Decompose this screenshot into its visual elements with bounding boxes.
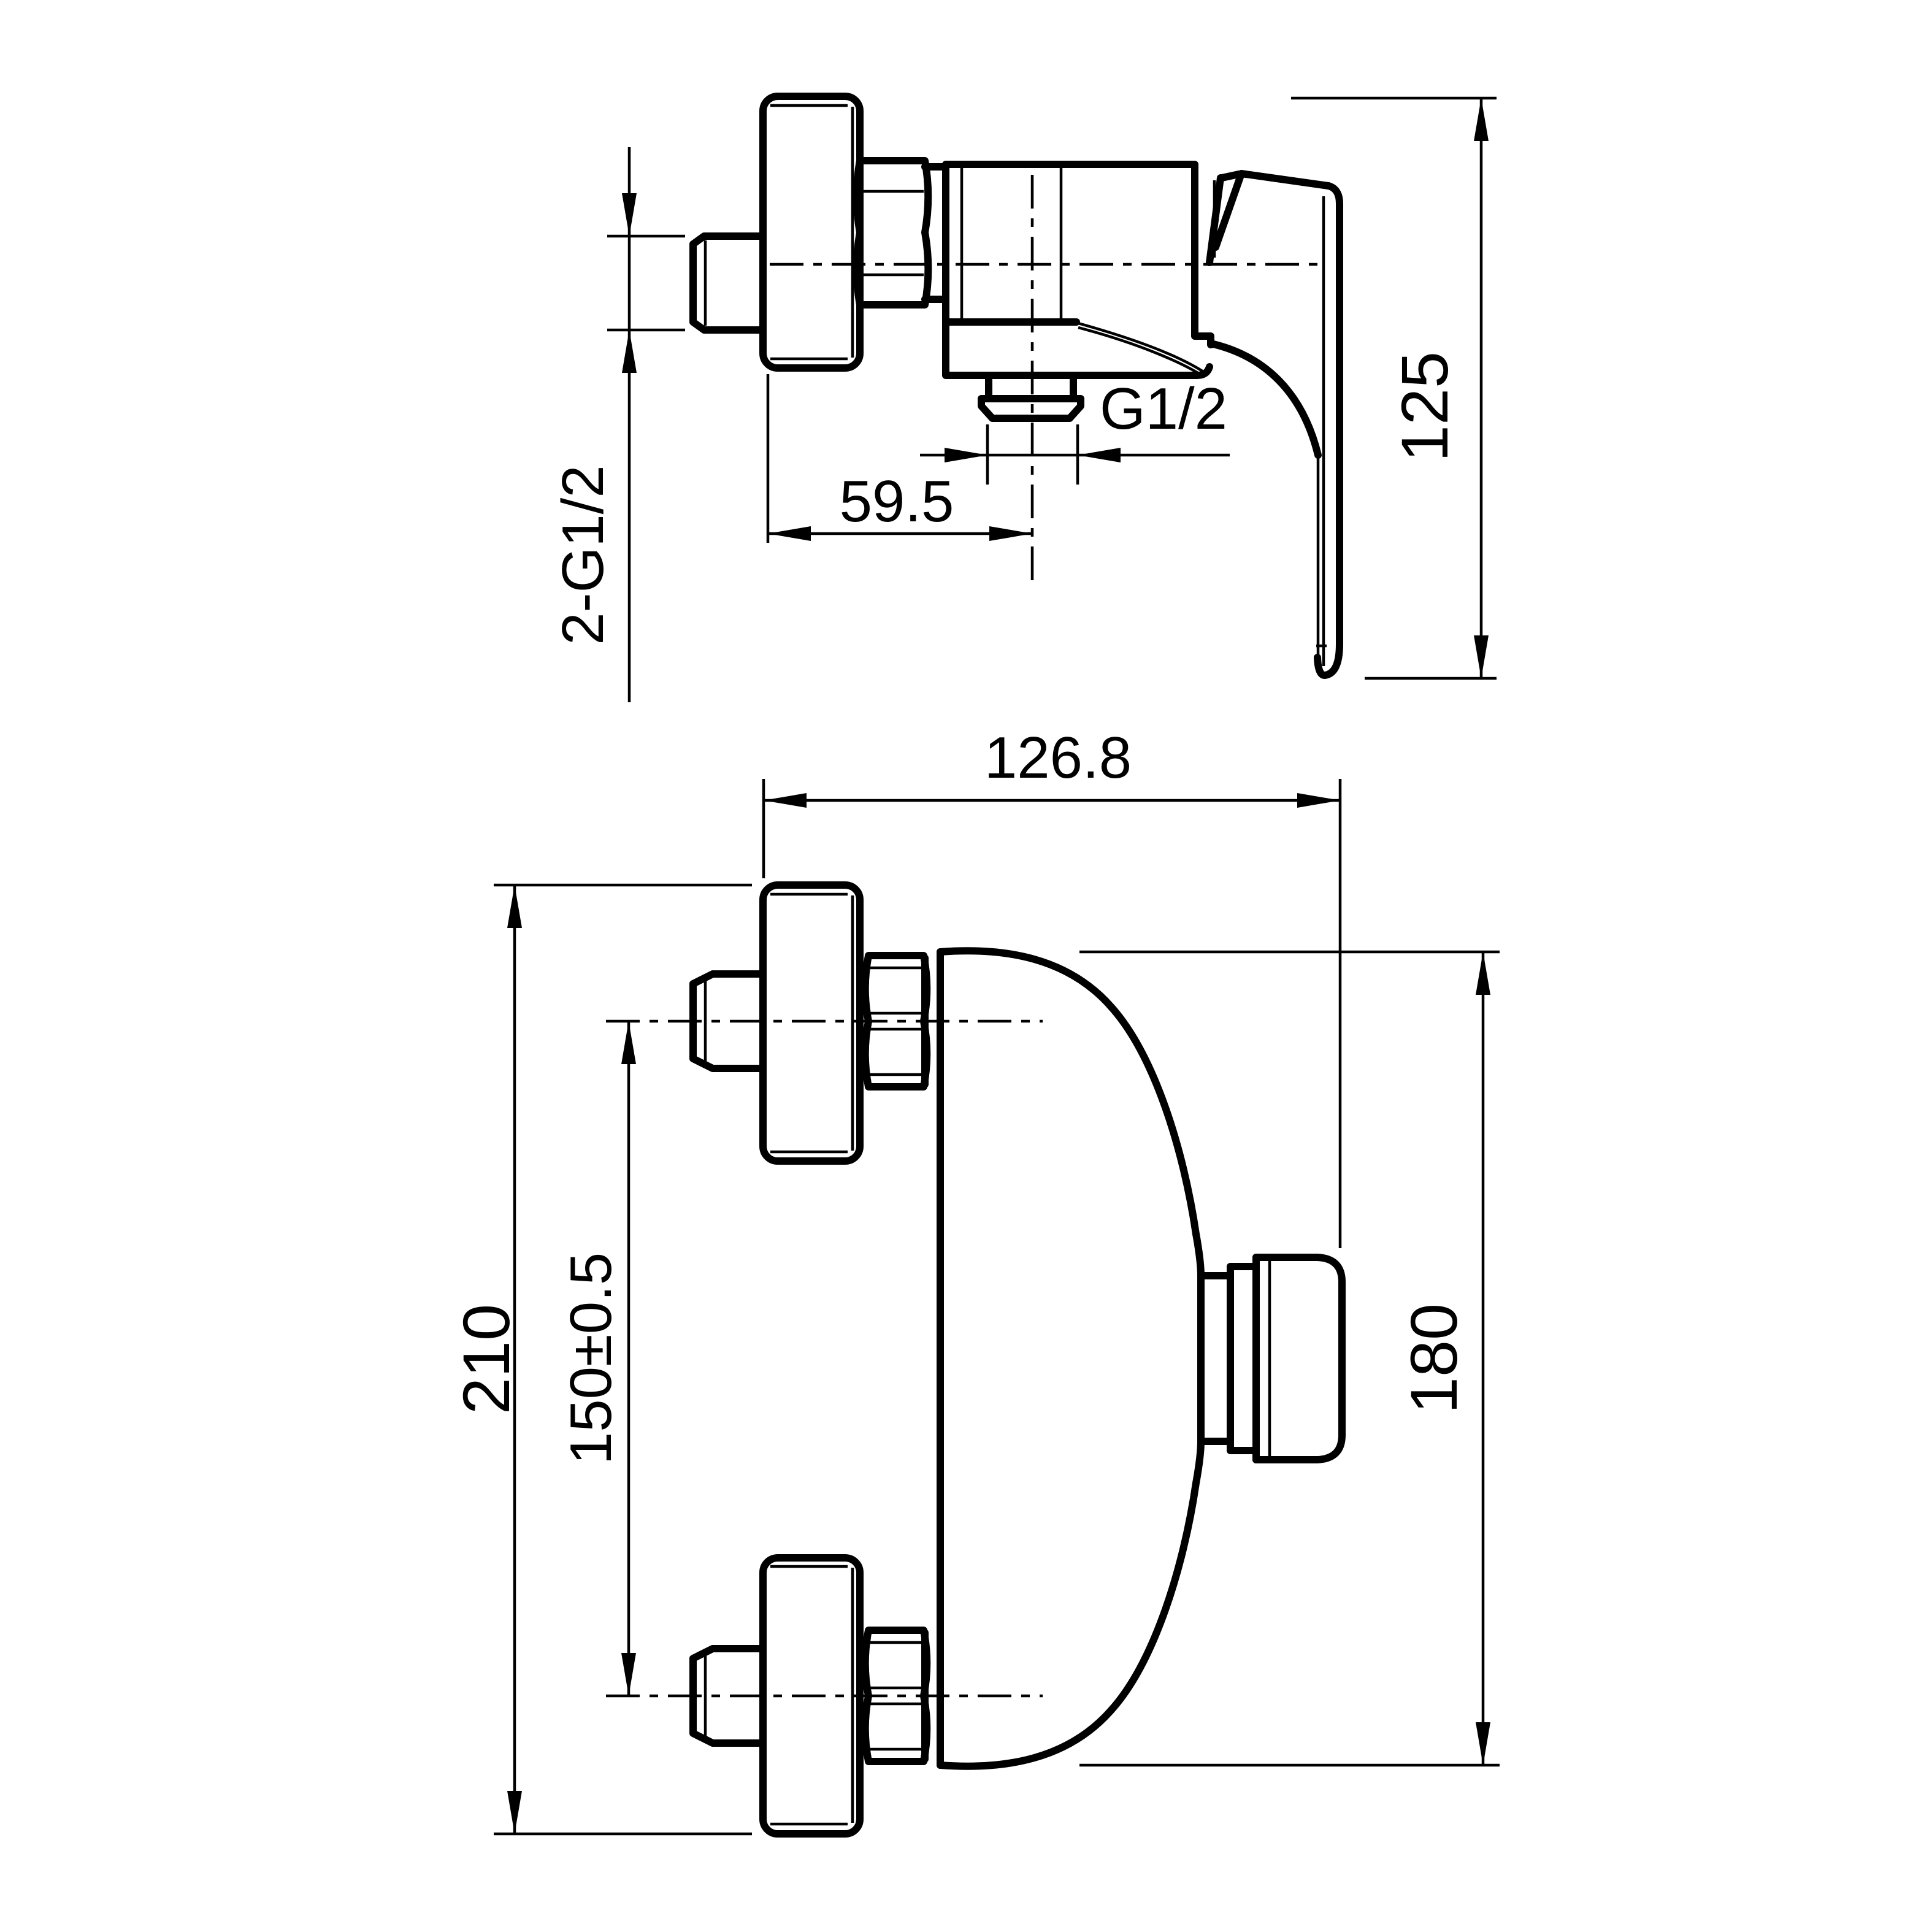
front-view: 126.8 210 150±0.5 180 xyxy=(449,725,1500,1834)
side-view: 2-G1/2 G1/2 59.5 125 xyxy=(550,96,1497,702)
wall-flange-upper xyxy=(763,885,860,1161)
dim-spacing-label: 150±0.5 xyxy=(558,1252,624,1465)
dim-inlet-spacing: 150±0.5 xyxy=(558,1021,636,1696)
dim-arrow-up-icon xyxy=(1474,98,1489,141)
dim-front-width: 126.8 xyxy=(764,725,1340,1248)
spout-waterfall-curves xyxy=(1078,323,1207,375)
dim-arrow-right-icon xyxy=(1297,793,1340,808)
lever-blade-outer-edge xyxy=(1317,186,1340,675)
body-front-upper-curve xyxy=(940,951,1201,1276)
valve-body-cartridge-lines xyxy=(962,167,1061,319)
dim-wall-thread-ext-lines xyxy=(607,236,685,330)
dim-wall-thread-label: 2-G1/2 xyxy=(550,465,616,645)
wall-flange-side xyxy=(763,96,860,368)
dim-height-label: 125 xyxy=(1387,351,1462,462)
dim-arrow-right-icon xyxy=(989,526,1032,541)
dim-arrow-right-icon xyxy=(945,448,987,462)
valve-body-side xyxy=(946,164,1211,375)
dim-arrow-up-icon xyxy=(621,1021,636,1064)
dim-body-label: 180 xyxy=(1397,1303,1471,1414)
dim-arrow-up-icon xyxy=(507,885,522,928)
dim-arrow-up-icon xyxy=(622,330,637,373)
dim-arrow-left-icon xyxy=(764,793,807,808)
dim-width-label: 126.8 xyxy=(984,725,1132,791)
dim-arrow-left-icon xyxy=(768,526,811,541)
dim-arrow-left-icon xyxy=(1078,448,1121,462)
dim-body-height: 180 xyxy=(1079,952,1500,1765)
dim-arrow-down-icon xyxy=(507,1791,522,1834)
wall-flange-side-inner-lines xyxy=(770,105,853,359)
dim-arrow-down-icon xyxy=(1474,635,1489,678)
dim-arrow-up-icon xyxy=(1476,952,1490,995)
dim-wall-thread: 2-G1/2 xyxy=(550,147,685,702)
dim-width-ext-lines xyxy=(764,779,1340,1248)
hex-nut-side xyxy=(857,161,929,305)
body-front-lower-curve xyxy=(940,1441,1201,1766)
drawing-sheet: 2-G1/2 G1/2 59.5 125 xyxy=(0,0,1932,1932)
wall-flange-upper-inner-lines xyxy=(770,894,853,1152)
dim-outlet-label: G1/2 xyxy=(1100,376,1227,442)
lever-blade-inner-lines xyxy=(1316,196,1327,666)
dim-arrow-down-icon xyxy=(622,193,637,236)
inlet-stub-side xyxy=(693,236,763,330)
handle-collar-rings xyxy=(1201,1257,1256,1460)
mixer-installation-drawing: 2-G1/2 G1/2 59.5 125 xyxy=(0,0,1932,1932)
dim-overall-label: 210 xyxy=(449,1304,523,1414)
dim-arrow-down-icon xyxy=(621,1653,636,1696)
hex-nut-side-facet-lines xyxy=(861,191,924,275)
dim-offset-label: 59.5 xyxy=(840,469,954,534)
dim-arrow-down-icon xyxy=(1476,1722,1490,1765)
